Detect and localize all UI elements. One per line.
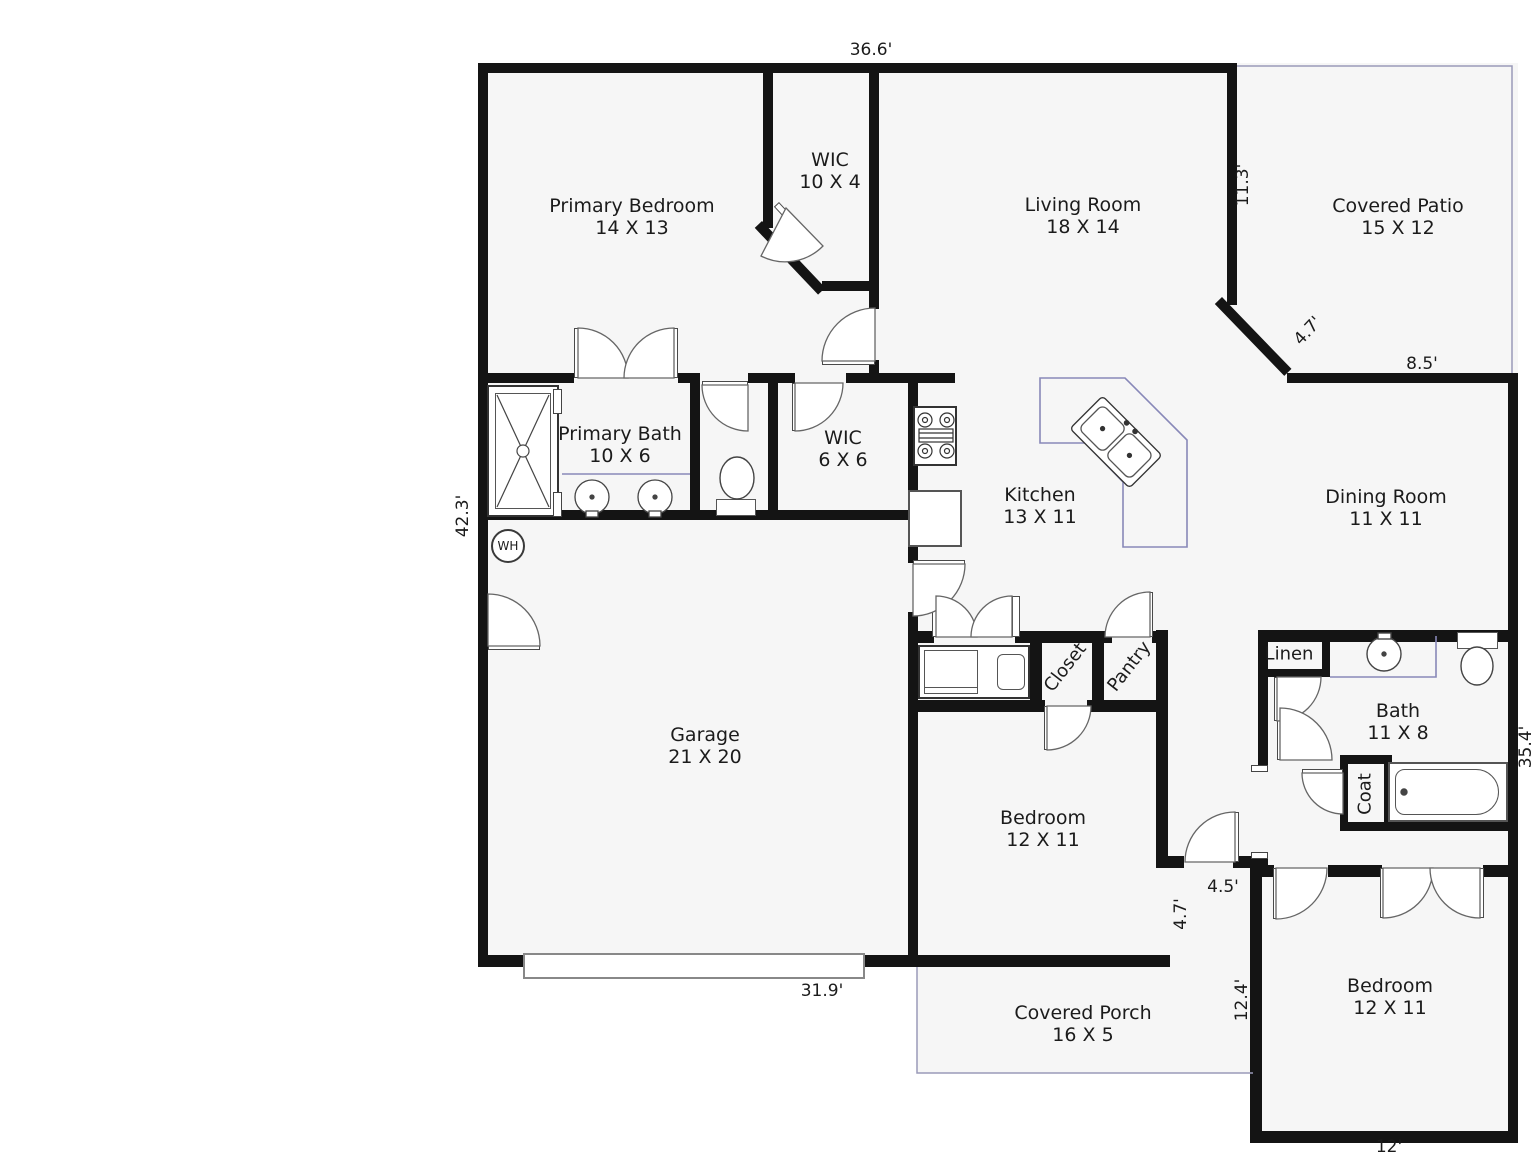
floor-plan: WH: [0, 0, 1536, 1152]
room-label-living-room: Living Room18 X 14: [1025, 194, 1142, 238]
label-linen: Linen: [1265, 645, 1314, 666]
room-label-bath: Bath11 X 8: [1367, 700, 1428, 744]
door-french-right-arc: [624, 328, 674, 378]
room-label-primary-bath: Primary Bath10 X 6: [558, 423, 682, 467]
door-closet-br-right-arc: [1430, 868, 1480, 918]
room-label-covered-patio: Covered Patio15 X 12: [1332, 195, 1464, 239]
door-arcs: [488, 208, 1480, 919]
door-closet-br-left-arc: [1383, 868, 1433, 918]
dim-right: 35.4': [1516, 726, 1536, 769]
dim-left: 42.3': [453, 495, 473, 538]
room-label-kitchen: Kitchen13 X 11: [1003, 484, 1076, 528]
door-garage-side-arc: [488, 594, 540, 646]
room-label-covered-porch: Covered Porch16 X 5: [1014, 1002, 1151, 1046]
door-bedroom-br-arc: [1276, 868, 1327, 919]
dim-patio-left: 11.3': [1233, 164, 1253, 207]
door-hall-porch-arc: [1185, 812, 1235, 862]
door-primary-entry-arc: [822, 308, 875, 361]
dim-hall-width: 4.5': [1207, 877, 1239, 897]
kitchen-sink: [1070, 396, 1162, 488]
door-closet-mid-arc: [1047, 706, 1091, 750]
room-label-garage: Garage21 X 20: [668, 724, 741, 768]
dim-bottom: 31.9': [801, 981, 844, 1001]
room-label-wic10: WIC10 X 4: [799, 149, 860, 193]
plan-vector-overlay: [0, 0, 1536, 1152]
dim-patio-bottom: 8.5': [1406, 354, 1438, 374]
door-laundry-right-arc: [971, 596, 1012, 637]
room-label-wic6: WIC6 X 6: [818, 427, 867, 471]
door-coat-arc: [1302, 773, 1343, 814]
door-wic10-arc: [761, 208, 823, 262]
dim-bedroom-bottom: 12': [1376, 1137, 1402, 1157]
shower-detail: [497, 395, 549, 507]
room-label-dining-room: Dining Room11 X 11: [1325, 486, 1446, 530]
door-french-left-arc: [578, 328, 628, 378]
door-powder-arc: [702, 385, 748, 431]
room-label-bedroom-mid: Bedroom12 X 11: [1000, 807, 1086, 851]
door-wic6-arc: [795, 383, 843, 431]
room-label-primary-bedroom: Primary Bedroom14 X 13: [549, 195, 714, 239]
room-label-bedroom-br: Bedroom12 X 11: [1347, 975, 1433, 1019]
dim-top: 36.6': [850, 40, 893, 60]
powder-toilet-bowl: [720, 457, 754, 499]
door-bath-arc: [1280, 708, 1332, 760]
primary-bath-sinks: [575, 480, 672, 517]
label-coat: Coat: [1356, 773, 1377, 815]
dim-porch-side: 12.4': [1232, 979, 1252, 1022]
dim-hall-side: 4.7': [1171, 898, 1191, 930]
door-pantry-arc: [1105, 592, 1150, 637]
stove-burners: [918, 413, 954, 458]
